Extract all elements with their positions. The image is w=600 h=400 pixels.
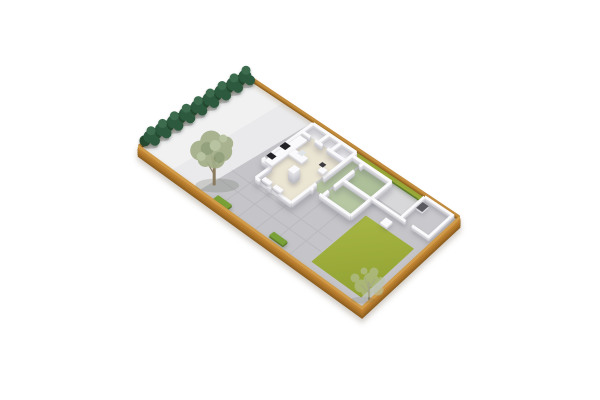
floor-plan-render	[0, 0, 600, 400]
canopy-blob	[370, 268, 379, 277]
shrub-blob	[206, 89, 215, 98]
canopy-blob	[362, 287, 373, 298]
shrub-blob	[147, 126, 156, 135]
canopy-blob	[361, 268, 368, 275]
shrub-blob	[158, 119, 167, 128]
canopy-blob	[214, 152, 225, 163]
canopy-blob	[373, 285, 384, 296]
shrub-blob	[242, 66, 251, 75]
canopy-blob	[197, 152, 206, 161]
shrub-blob	[230, 73, 239, 82]
shrub-blob	[170, 111, 179, 120]
canopy-blob	[377, 277, 385, 285]
canopy-blob	[351, 274, 360, 283]
canopy-blob	[210, 140, 221, 151]
shrub-blob	[182, 104, 191, 113]
tree-shadow	[195, 179, 239, 193]
scene-canvas	[0, 0, 600, 400]
tree-shadow	[351, 297, 375, 304]
shrub-blob	[218, 81, 227, 90]
shrub-blob	[194, 96, 203, 105]
wall-front-seg	[268, 186, 271, 188]
canopy-blob	[219, 135, 227, 143]
wall-wing-front-seg	[311, 188, 314, 190]
